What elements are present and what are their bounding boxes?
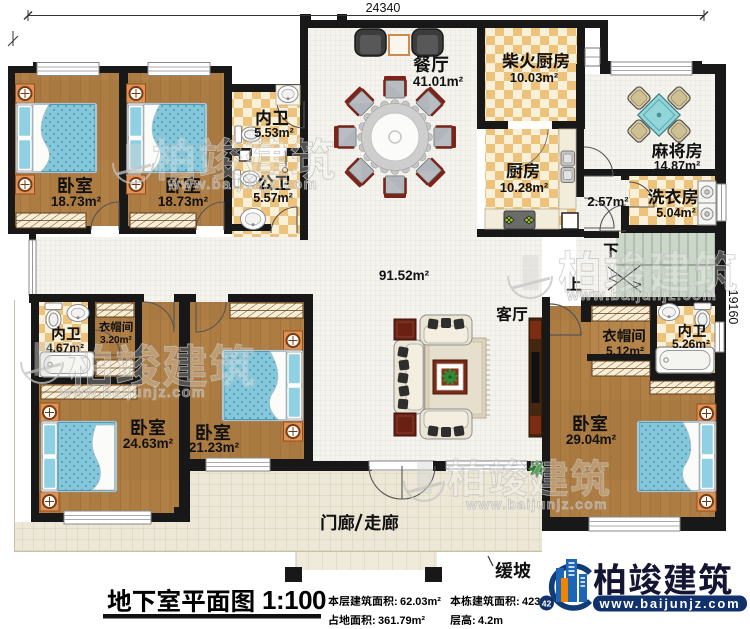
svg-text:5.04m²: 5.04m² [656, 206, 696, 220]
svg-text::: : [394, 596, 398, 608]
svg-text:3.20m²: 3.20m² [100, 335, 132, 346]
svg-text:5.26m²: 5.26m² [672, 337, 710, 351]
svg-text:42: 42 [542, 599, 552, 609]
svg-text:18.73m²: 18.73m² [51, 194, 102, 209]
svg-text:5.12m²: 5.12m² [606, 344, 644, 358]
svg-text:24.63m²: 24.63m² [123, 436, 174, 451]
svg-text:5.57m²: 5.57m² [253, 191, 293, 205]
svg-text:24340: 24340 [366, 1, 401, 15]
svg-text:10.03m²: 10.03m² [510, 70, 559, 85]
svg-text:41.01m²: 41.01m² [413, 74, 464, 89]
svg-text:4.2m: 4.2m [478, 615, 503, 627]
svg-text:14.87m²: 14.87m² [654, 159, 701, 173]
svg-text:2.57m²: 2.57m² [587, 194, 629, 209]
svg-text::: : [516, 596, 520, 608]
svg-text:www.baijunjz.com: www.baijunjz.com [59, 385, 206, 401]
svg-text:1:100: 1:100 [262, 585, 326, 615]
svg-text:10.28m²: 10.28m² [500, 180, 549, 195]
svg-text:91.52m²: 91.52m² [379, 268, 430, 283]
svg-text::: : [472, 615, 476, 627]
svg-text:19160: 19160 [726, 290, 740, 325]
svg-text:21.23m²: 21.23m² [189, 440, 240, 455]
svg-text:www.baijunjz.com: www.baijunjz.com [465, 496, 608, 512]
svg-text:www.baijunjz.com: www.baijunjz.com [566, 287, 717, 304]
svg-text:18.73m²: 18.73m² [158, 194, 209, 209]
svg-text::: : [372, 615, 376, 627]
svg-text:www.baijunjz.com: www.baijunjz.com [599, 596, 741, 611]
svg-text:www.baijunjz.com: www.baijunjz.com [167, 176, 318, 193]
svg-text:361.79m²: 361.79m² [378, 615, 425, 627]
svg-text:29.04m²: 29.04m² [566, 432, 617, 447]
svg-text:62.03m²: 62.03m² [400, 596, 441, 608]
